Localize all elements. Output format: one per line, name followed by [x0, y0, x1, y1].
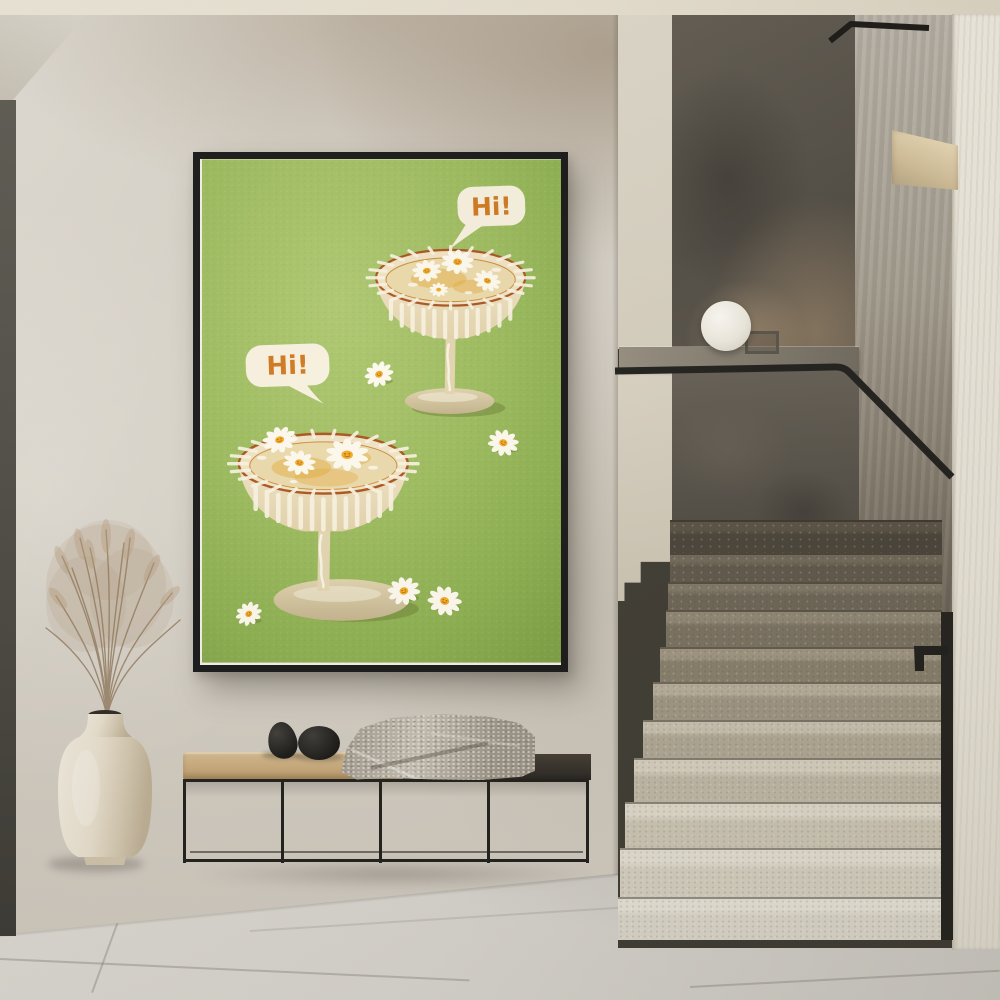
vase-with-pampas [28, 508, 190, 870]
bench-leg [379, 779, 382, 863]
bubble-back-text: Hi! [471, 191, 513, 221]
bench-leg [487, 779, 490, 863]
ceramic-vase [58, 710, 152, 865]
decor-stone-round [298, 726, 340, 760]
bench-leg [281, 779, 284, 863]
entry-hall-photo: Hi! [0, 0, 1000, 1000]
bench-rear-stretcher [190, 851, 583, 853]
bench-top-rail [183, 779, 589, 782]
bench-leg [586, 779, 589, 863]
bench-floor-shadow [192, 860, 596, 888]
main-handrail [615, 367, 952, 477]
pampas-grass [46, 519, 183, 717]
newel-post [941, 612, 953, 940]
bubble-front-text: Hi! [266, 350, 309, 381]
bench-leg [183, 779, 186, 863]
bench-bottom-stretcher [183, 859, 589, 862]
artwork-frame: Hi! [193, 152, 568, 672]
under-seat-shadow [185, 781, 589, 797]
artwork-canvas: Hi! [202, 159, 561, 663]
upper-handrail [830, 24, 929, 41]
